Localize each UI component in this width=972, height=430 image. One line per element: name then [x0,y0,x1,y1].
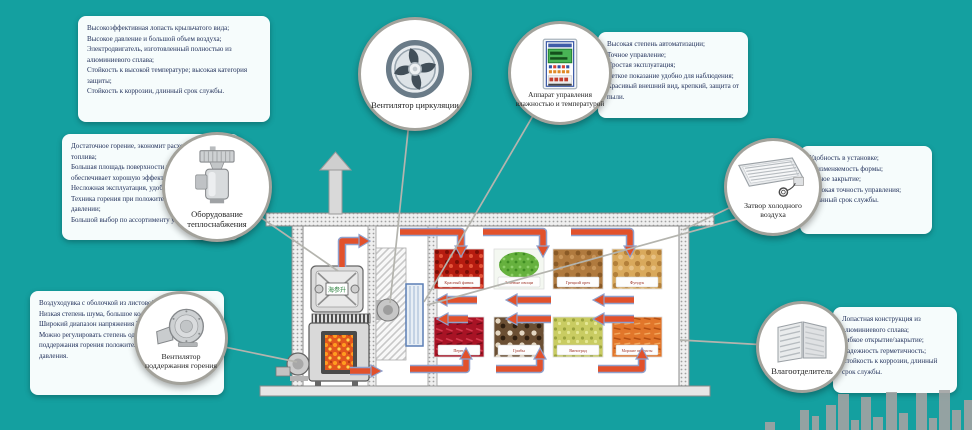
callout-circulation-fan: Вентилятор циркуляции [358,17,472,131]
radiator-grill [312,314,370,323]
heating-equipment-label: Оборудование теплоснабжения [169,210,265,229]
svg-text:Фундук: Фундук [630,280,645,285]
moisture-separator-label: Влагоотделитель [762,367,841,377]
fire-window [325,335,353,370]
svg-text:Красный финик: Красный финик [444,280,474,285]
chimney-cap [320,152,351,170]
svg-text:Виноград: Виноград [569,348,587,353]
product-tile: Виноград [553,317,603,357]
product-tile: Красный финик [434,249,484,289]
callout-cold-air-valve: Затвор холодного воздуха [724,138,822,236]
svg-text:Морские продукты: Морские продукты [622,349,653,353]
callout-heating-equipment: Оборудование теплоснабжения [162,132,272,242]
svg-text:Грецкий орех: Грецкий орех [566,280,591,285]
product-tile: Фундук [612,249,662,289]
callout-combustion-fan: Вентилятор поддержания горения [134,291,228,385]
furnace-brand-plate: 海参升 [328,286,346,294]
heating-unit-icon [188,145,246,209]
callout-control-unit: Аппарат управления влажностью и температ… [508,21,612,125]
circulation-fan-label: Вентилятор циркуляции [365,101,464,111]
svg-text:Грибы: Грибы [513,348,525,353]
louver-panel-icon [774,318,830,366]
axial-fan-icon [384,38,446,100]
floor-slab [260,386,710,396]
infographic-canvas: Высокоэффективная лопасть крыльчатого ви… [0,0,972,430]
controller-icon [541,38,579,90]
product-tile: Зеленые овощи [494,249,544,289]
louver-valve-icon [735,155,811,201]
control-unit-label: Аппарат управления влажностью и температ… [515,91,605,107]
cold-air-valve-label: Затвор холодного воздуха [731,202,816,219]
chimney [329,170,342,214]
combustion-fan-label: Вентилятор поддержания горения [141,353,222,370]
product-tile: Грецкий орех [553,249,603,289]
blower-icon [151,306,211,352]
callout-moisture-separator: Влагоотделитель [756,301,848,393]
